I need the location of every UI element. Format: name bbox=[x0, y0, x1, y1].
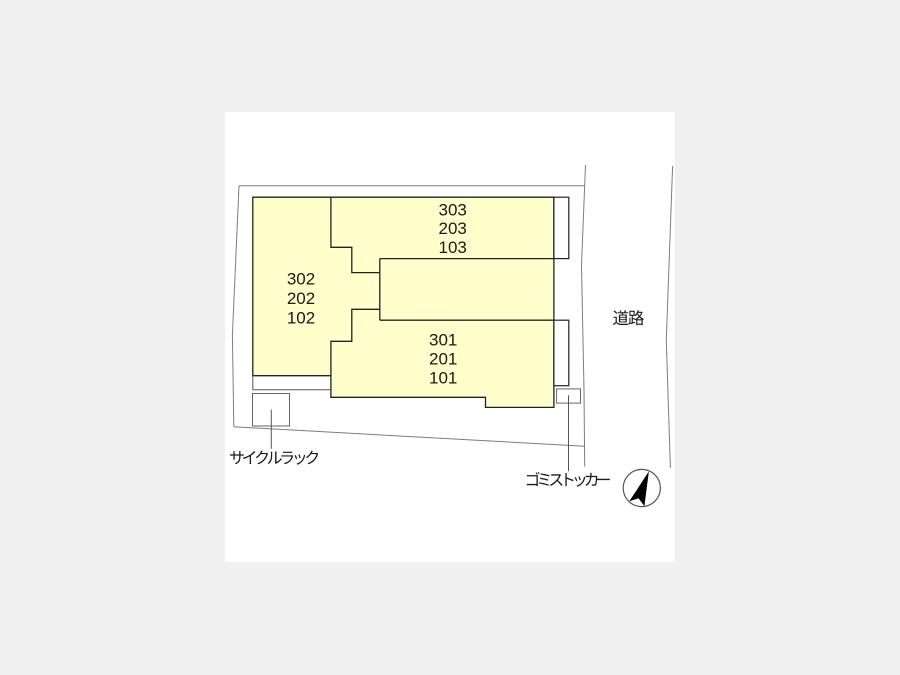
svg-text:102: 102 bbox=[287, 308, 315, 327]
svg-text:202: 202 bbox=[287, 289, 315, 308]
svg-text:301: 301 bbox=[429, 331, 457, 350]
svg-text:203: 203 bbox=[439, 219, 467, 238]
svg-text:201: 201 bbox=[429, 350, 457, 369]
svg-text:302: 302 bbox=[287, 270, 315, 289]
svg-text:101: 101 bbox=[429, 369, 457, 388]
svg-text:103: 103 bbox=[439, 238, 467, 257]
svg-text:303: 303 bbox=[439, 200, 467, 219]
